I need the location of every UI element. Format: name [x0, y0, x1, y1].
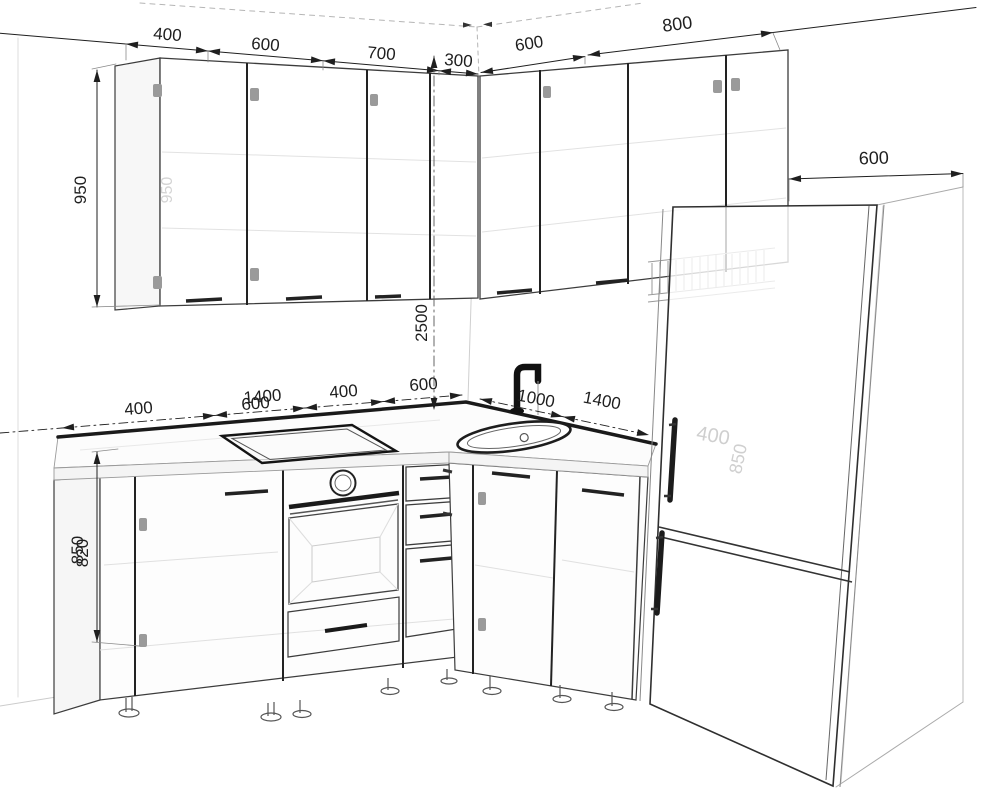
hinge: [250, 268, 259, 281]
dim-label-wall-right-800: 800: [661, 12, 693, 36]
handle-bracket: [656, 537, 663, 538]
oven-knob: [331, 471, 356, 496]
hinge: [153, 84, 162, 97]
dim-label-wallcab-height: 950: [71, 176, 90, 204]
hinge: [250, 88, 259, 101]
floor-right-line: [836, 702, 963, 787]
right-wall-top-edge: [877, 187, 963, 205]
dim-label-wall-left-300: 300: [444, 50, 474, 71]
dim-line-c400b: [305, 402, 383, 408]
corner-arrow-right: [483, 22, 492, 27]
dim-line-tall-600: [789, 174, 963, 180]
base-cabinets-left: [54, 461, 466, 721]
dim-label-counter-1400: 1400: [243, 386, 282, 408]
wall-door-handle: [286, 297, 322, 299]
dim-label-wall-left-400: 400: [153, 24, 183, 45]
wall-door-handle: [186, 299, 222, 301]
dim-label-wall-left-600: 600: [251, 34, 281, 55]
ceiling-dashed-right: [477, 3, 643, 27]
wall-door-handle: [375, 296, 401, 297]
drawing-canvas: 400 600 700 300 600 800 600 950 2500 850…: [0, 0, 981, 809]
dim-label-counter-400b: 400: [329, 381, 359, 402]
dim-label-base-height-820: 820: [73, 539, 92, 567]
dim-label-tall-depth: 600: [858, 147, 889, 168]
faded-label-950: 950: [159, 177, 176, 204]
hinge: [139, 518, 147, 531]
dim-leader: [773, 8, 976, 33]
base-side-panel: [54, 476, 100, 714]
corner-drawer-handle: [443, 513, 452, 515]
hinge: [139, 634, 147, 647]
hinge: [478, 618, 486, 631]
dim-leader: [0, 33, 126, 44]
hinge: [370, 94, 378, 106]
hinge: [543, 86, 551, 98]
drawer-handle: [420, 477, 452, 479]
dim-label-counter-600b: 600: [409, 374, 439, 395]
ext-line: [92, 64, 116, 69]
ext-line: [773, 33, 780, 50]
ceiling-dashed-left: [140, 3, 477, 27]
dim-line-c600b: [383, 395, 462, 402]
dim-label-wall-left-700: 700: [367, 43, 397, 64]
hinge: [478, 492, 486, 505]
dim-leader: [0, 428, 62, 433]
dim-label-wall-right-600: 600: [514, 32, 545, 55]
base-cabinets-right: [443, 463, 648, 711]
ceiling-corner-dashed: [477, 27, 479, 77]
dim-label-counter-1400r: 1400: [582, 388, 623, 414]
hinge: [153, 276, 162, 289]
handle-bracket: [669, 424, 676, 425]
dim-label-room-height: 2500: [412, 304, 431, 342]
kitchen-wireframe-drawing: 400 600 700 300 600 800 600 950 2500 850…: [0, 0, 981, 809]
dim-line-800: [588, 33, 773, 56]
fridge-body: [650, 205, 877, 786]
corner-drawer-handle: [443, 470, 452, 472]
dim-line-400: [126, 44, 208, 51]
dim-label-counter-400a: 400: [124, 398, 154, 419]
hinge: [713, 80, 722, 93]
hinge: [731, 78, 740, 91]
